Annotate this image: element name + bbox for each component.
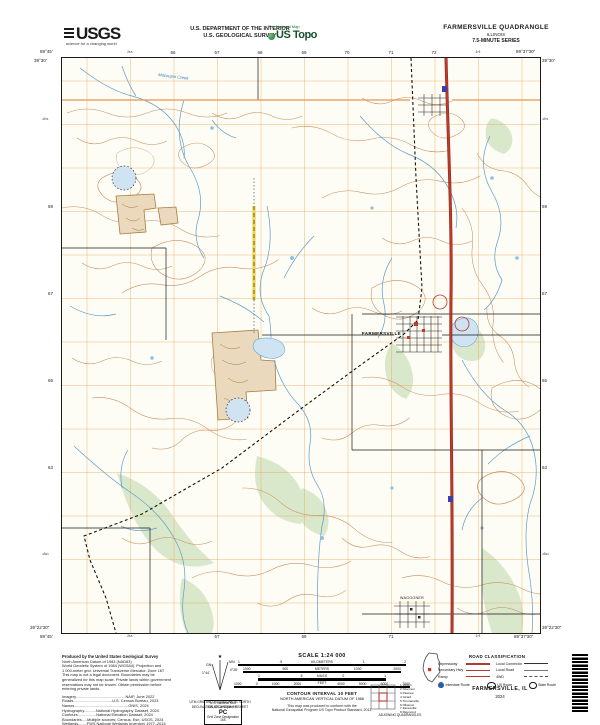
adjoining-title: ADJOINING QUADRANGLES xyxy=(370,713,430,717)
scalebar-miles: 1 .5 0 1 MILES xyxy=(230,674,414,680)
tick: 500 xyxy=(282,667,288,671)
tick: 0 xyxy=(342,674,344,678)
tick: 2000 xyxy=(393,667,401,671)
utm-northing-label: 65 xyxy=(542,378,547,383)
quad-state: ILLINOIS xyxy=(408,32,584,37)
usng-zone: 16S xyxy=(205,719,241,723)
corner-br-lat: 39°22'30" xyxy=(542,625,561,630)
sheet-year: 2024 xyxy=(430,694,570,699)
utm-northing-label: ⁴³⁶¹ xyxy=(42,552,49,557)
adjoining-quads-grid xyxy=(370,684,397,711)
svg-text:★: ★ xyxy=(218,654,223,660)
utm-easting-label: 70 xyxy=(344,50,349,55)
corner-tl-lat: 39°30' xyxy=(34,58,47,63)
tick: 1 xyxy=(384,674,386,678)
scale-title: SCALE 1:24 000 xyxy=(230,653,414,659)
utm-northing-label: 67 xyxy=(542,291,547,296)
utm-easting-label: ²⁷³ xyxy=(476,50,481,55)
road-class-label: Ramp xyxy=(438,675,466,679)
scalebar-meters: 1000 500 0 1000 2000 METERS xyxy=(230,667,414,673)
metadata-barcode xyxy=(572,654,588,712)
gn-label: GN xyxy=(206,663,212,667)
road-class-label: Expressway xyxy=(438,662,466,666)
usgs-tagline: science for a changing world xyxy=(66,41,117,46)
usgs-topo-sheet: USGS science for a changing world U.S. D… xyxy=(0,0,600,725)
rest-area-marker xyxy=(442,86,447,92)
adjoining-names: 1 Virden 2 Divernon 3 Pawnee 4 Girard 5 … xyxy=(400,684,419,715)
road-class-label: Secondary Hwy xyxy=(438,668,466,672)
tick: 0 xyxy=(256,682,258,686)
map-area: Macoupin Creek FARMERSVILLE WAGGONER xyxy=(61,57,541,634)
quad-location-marker xyxy=(428,668,431,671)
utm-easting-label: 72 xyxy=(431,50,436,55)
credits-block: Produced by the United States Geological… xyxy=(62,655,192,725)
gn-value: 1°44' xyxy=(202,671,210,675)
tick: .5 xyxy=(300,674,303,678)
tick: 1000 xyxy=(272,682,280,686)
credit-line: entering private lands. xyxy=(62,687,192,692)
local-road-line xyxy=(524,670,548,671)
utm-easting-label: 66 xyxy=(170,50,175,55)
utm-northing-label: ⁴³⁷¹ xyxy=(542,117,549,122)
ramp-line xyxy=(466,676,490,677)
utm-easting-label: 71 xyxy=(388,50,393,55)
bar-unit: FEET xyxy=(315,681,330,685)
topo-map-canvas: Macoupin Creek FARMERSVILLE WAGGONER xyxy=(62,58,540,633)
tick: 5000 xyxy=(359,682,367,686)
secondary-hwy-line xyxy=(466,670,490,671)
quad-series: 7.5-MINUTE SERIES xyxy=(408,38,584,44)
quad-title-block: FARMERSVILLE QUADRANGLE ILLINOIS 7.5-MIN… xyxy=(408,24,584,44)
usgs-logo-bars-icon xyxy=(64,28,74,39)
tick: 2 xyxy=(404,660,406,664)
scalebar-kilometers: 1 .5 0 1 2 KILOMETERS xyxy=(230,660,414,666)
tick: 4000 xyxy=(337,682,345,686)
utm-northing-label: 63 xyxy=(48,465,53,470)
quad-title: FARMERSVILLE QUADRANGLE xyxy=(408,24,584,31)
utm-northing-label: 63 xyxy=(542,465,547,470)
sheet-name: FARMERSVILLE, IL xyxy=(430,686,570,692)
sheet-name-block: FARMERSVILLE, IL 2024 xyxy=(430,686,570,699)
tick: 2000 xyxy=(294,682,302,686)
road-class-label: 4WD xyxy=(496,675,524,679)
town-label-farmersville: FARMERSVILLE xyxy=(362,331,401,336)
corner-tr-lat: 39°30' xyxy=(542,58,555,63)
town-label-waggoner: WAGGONER xyxy=(400,596,424,600)
corner-tr-lon: 89°37'30" xyxy=(516,49,535,54)
corner-bl-lat: 39°22'30" xyxy=(30,625,49,630)
utm-northing-label: 67 xyxy=(48,291,53,296)
center-quad-cell xyxy=(379,693,387,701)
utm-easting-label: 69 xyxy=(301,50,306,55)
utm-northing-label: 69 xyxy=(48,204,53,209)
tick: 1000 xyxy=(354,667,362,671)
road-classification-block: ROAD CLASSIFICATION Expressway Local Con… xyxy=(438,654,556,689)
bar-unit: MILES xyxy=(314,674,330,678)
ustopo-label: US Topo xyxy=(276,29,317,41)
road-class-label: Local Connector xyxy=(496,662,524,666)
tick: 1000 xyxy=(234,682,242,686)
tick: .5 xyxy=(279,660,282,664)
utm-northing-label: ⁴³⁶¹ xyxy=(542,552,549,557)
ustopo-logo: The National Map US Topo xyxy=(268,24,328,41)
utm-easting-label: 67 xyxy=(214,50,219,55)
bar-unit: METERS xyxy=(312,667,332,671)
local-connector-line xyxy=(524,663,548,664)
tick: 1 xyxy=(258,674,260,678)
corner-tl-lon: 89°45' xyxy=(40,49,53,54)
expressway-line xyxy=(466,663,490,665)
corner-bl-lon: 89°45' xyxy=(40,634,53,639)
road-class-title: ROAD CLASSIFICATION xyxy=(438,654,556,659)
globe-icon xyxy=(268,33,275,40)
utm-easting-label: 68 xyxy=(257,50,262,55)
road-class-label: Local Road xyxy=(496,668,524,672)
utm-easting-label: ²⁶⁵ xyxy=(127,50,132,55)
utm-northing-label: 65 xyxy=(48,378,53,383)
utm-northing-label: 69 xyxy=(542,204,547,209)
rest-area-marker xyxy=(448,496,453,502)
tick: 1 xyxy=(363,660,365,664)
tick: 1000 xyxy=(243,667,251,671)
tick: 1 xyxy=(238,660,240,664)
utm-northing-label: ⁴³⁷¹ xyxy=(42,117,49,122)
bar-unit: KILOMETERS xyxy=(308,660,336,664)
fourwd-line xyxy=(524,676,548,677)
